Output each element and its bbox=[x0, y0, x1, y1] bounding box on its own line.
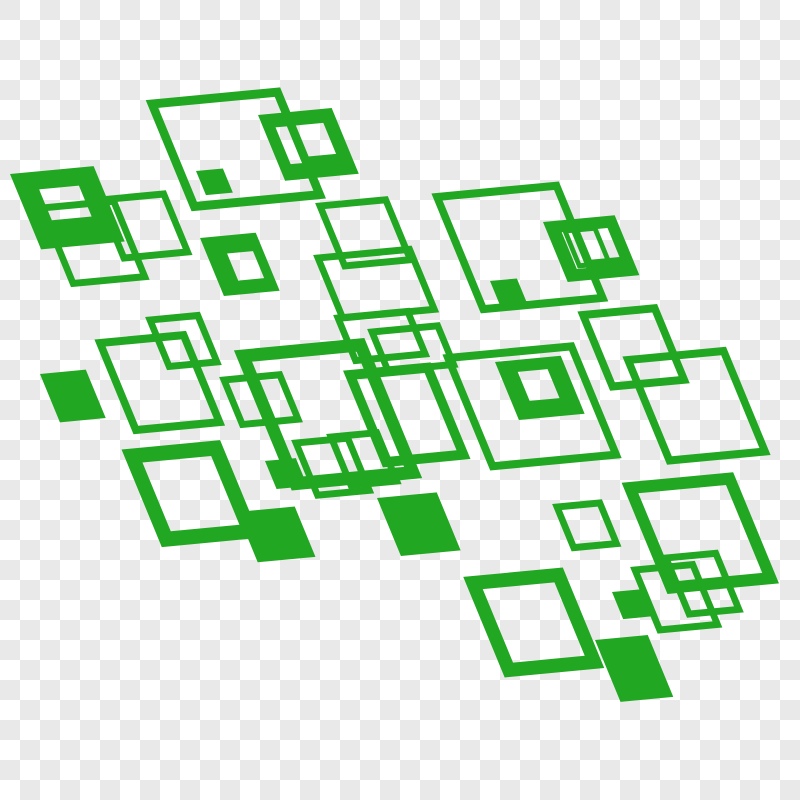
green-square-outline-right-outline-big bbox=[628, 351, 765, 461]
image-canvas bbox=[0, 0, 800, 800]
green-square-outline-lower-left-thick-outline bbox=[132, 448, 250, 539]
green-square-ring-left-small-ring bbox=[200, 233, 280, 296]
squares-graphic bbox=[0, 0, 800, 800]
green-square-filled-lower-left-filled bbox=[237, 507, 315, 563]
green-square-ring-top-right-ring-with-slot bbox=[543, 215, 639, 282]
green-square-ring-center-right-ring bbox=[495, 356, 585, 420]
green-square-filled-lower-center-filled bbox=[377, 492, 461, 556]
green-square-filled-top-left-small-filled bbox=[196, 168, 233, 195]
green-square-outline-bottom-thick-outline bbox=[473, 575, 594, 670]
green-square-filled-mid-left-filled bbox=[40, 370, 106, 423]
green-square-filled-bottom-filled bbox=[595, 635, 673, 702]
green-square-outline-top-left-big-outline bbox=[152, 92, 320, 206]
green-square-outline-lower-right-small-outline bbox=[557, 503, 617, 548]
green-square-ring-top-ring-with-slot bbox=[258, 108, 359, 181]
green-square-filled-top-right-small-filled bbox=[490, 278, 527, 306]
